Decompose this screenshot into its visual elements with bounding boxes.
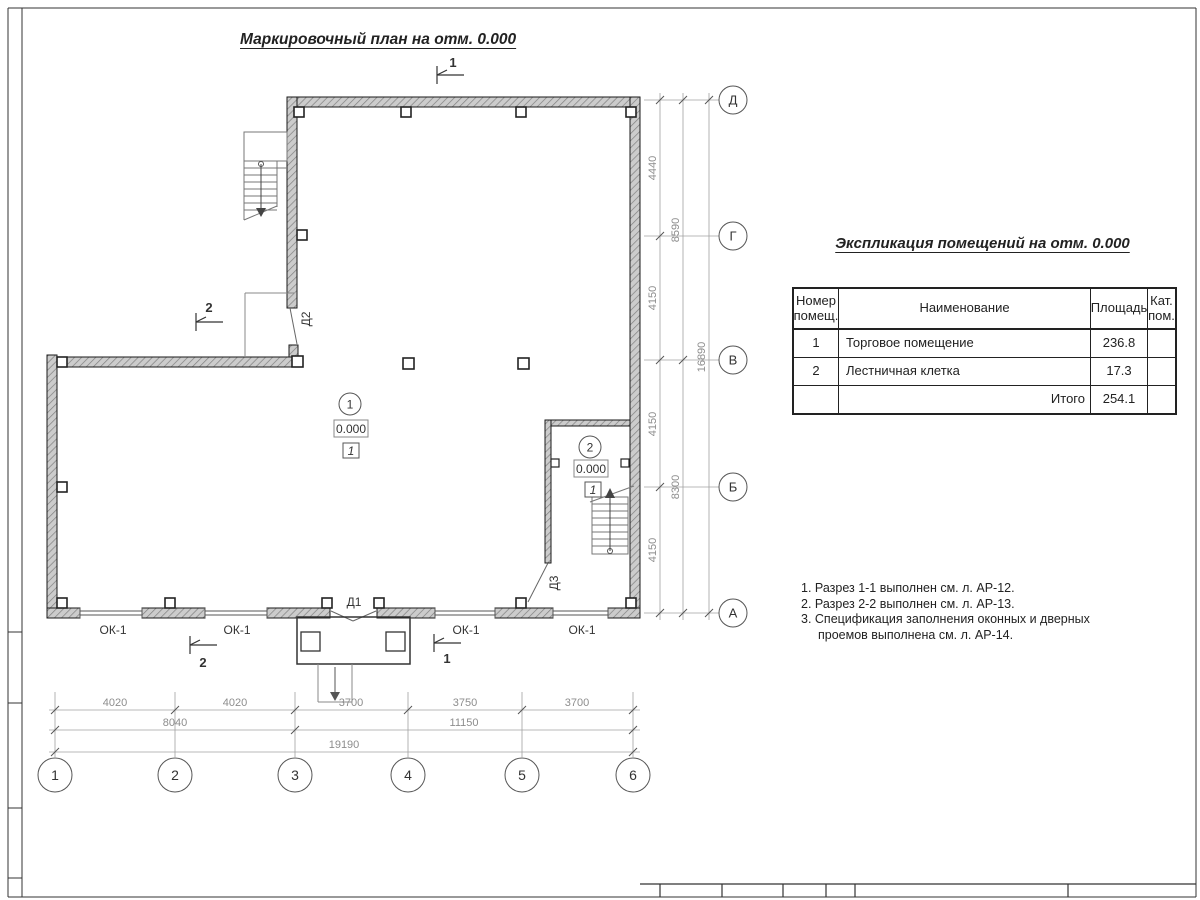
dim-bottom-3700-b: 3700	[565, 697, 589, 709]
window-label-ok1-a: ОК-1	[100, 623, 127, 637]
note-3: 3. Спецификация заполнения оконных и две…	[801, 612, 1090, 628]
total-row-empty	[794, 386, 839, 413]
dim-right-4150-c: 4150	[647, 538, 659, 562]
title-block-stub	[640, 884, 1196, 897]
dim-bottom-3750: 3750	[453, 697, 477, 709]
dim-right-4150-b: 4150	[647, 412, 659, 436]
floor-plan-canvas: 1 2 2 1 1 0.000 1 2 0.000 1 ОК-1 ОК-1 ОК…	[0, 0, 1200, 900]
note-1: 1. Разрез 1-1 выполнен см. л. АР-12.	[801, 581, 1090, 597]
room-2-number: 2	[587, 441, 594, 455]
dim-bottom-4020-b: 4020	[223, 697, 247, 709]
axis-row-g: Г	[729, 229, 736, 244]
header-room-number: Номер помещ.	[794, 289, 839, 330]
exterior-stair	[244, 132, 287, 220]
window-label-ok1-b: ОК-1	[224, 623, 251, 637]
row1-area: 236.8	[1091, 330, 1148, 358]
room-1-floor-type: 1	[348, 444, 355, 458]
room-1-elevation: 0.000	[336, 422, 366, 436]
section-mark-1-top-label: 1	[449, 55, 456, 70]
dim-bottom-19190: 19190	[329, 739, 360, 751]
row2-name: Лестничная клетка	[839, 358, 1091, 386]
axis-col-3: 3	[291, 767, 299, 783]
row1-number: 1	[794, 330, 839, 358]
axis-col-4: 4	[404, 767, 412, 783]
room-schedule-title: Экспликация помещений на отм. 0.000	[792, 235, 1173, 252]
section-mark-2-bottom-label: 2	[199, 655, 206, 670]
dim-right-8590: 8590	[670, 218, 682, 242]
door-label-d2: Д2	[299, 311, 313, 326]
axis-col-6: 6	[629, 767, 637, 783]
section-mark-1-bottom-label: 1	[443, 651, 450, 666]
room-1-number: 1	[347, 398, 354, 412]
room-2-elevation: 0.000	[576, 462, 606, 476]
row1-name: Торговое помещение	[839, 330, 1091, 358]
drawing-sheet: 1 2 2 1 1 0.000 1 2 0.000 1 ОК-1 ОК-1 ОК…	[0, 0, 1200, 900]
row2-category	[1148, 358, 1175, 386]
total-label: Итого	[839, 386, 1091, 413]
header-category: Кат. пом.	[1148, 289, 1175, 330]
dim-right-16890: 16890	[696, 342, 708, 373]
note-2: 2. Разрез 2-2 выполнен см. л. АР-13.	[801, 597, 1090, 613]
dim-right-4440: 4440	[647, 156, 659, 180]
entrance-vestibule	[297, 617, 410, 702]
header-name: Наименование	[839, 289, 1091, 330]
dim-bottom-8040: 8040	[163, 717, 187, 729]
total-category	[1148, 386, 1175, 413]
axis-col-2: 2	[171, 767, 179, 783]
dim-right-8300: 8300	[670, 475, 682, 499]
row1-category	[1148, 330, 1175, 358]
total-area: 254.1	[1091, 386, 1148, 413]
dim-bottom-4020-a: 4020	[103, 697, 127, 709]
room-2-label: 2 0.000 1	[574, 436, 608, 497]
row2-number: 2	[794, 358, 839, 386]
interior-stair	[590, 486, 634, 554]
axis-row-d: Д	[729, 93, 738, 108]
room-2-floor-type: 1	[590, 483, 597, 497]
dim-bottom-3700-a: 3700	[339, 697, 363, 709]
door-label-d1: Д1	[347, 595, 362, 609]
drawing-notes: 1. Разрез 1-1 выполнен см. л. АР-12. 2. …	[801, 581, 1090, 643]
row2-area: 17.3	[1091, 358, 1148, 386]
column-axis-bubbles	[38, 758, 650, 792]
axis-row-b: Б	[729, 480, 738, 495]
note-3-continued: проемов выполнена см. л. АР-14.	[818, 628, 1090, 644]
axis-row-v: В	[729, 353, 738, 368]
window-label-ok1-c: ОК-1	[453, 623, 480, 637]
door-leaves	[290, 308, 548, 621]
section-mark-2-left-label: 2	[205, 300, 212, 315]
plan-title: Маркировочный план на отм. 0.000	[240, 31, 516, 49]
room-1-label: 1 0.000 1	[334, 393, 368, 458]
dim-right-4150-a: 4150	[647, 286, 659, 310]
header-area: Площадь	[1091, 289, 1148, 330]
axis-col-5: 5	[518, 767, 526, 783]
room-schedule-table: Номер помещ. Наименование Площадь Кат. п…	[792, 287, 1177, 415]
door-label-d3: Д3	[547, 575, 561, 590]
window-label-ok1-d: ОК-1	[569, 623, 596, 637]
dim-bottom-11150: 11150	[450, 717, 479, 729]
axis-row-a: А	[729, 606, 738, 621]
axis-col-1: 1	[51, 767, 59, 783]
